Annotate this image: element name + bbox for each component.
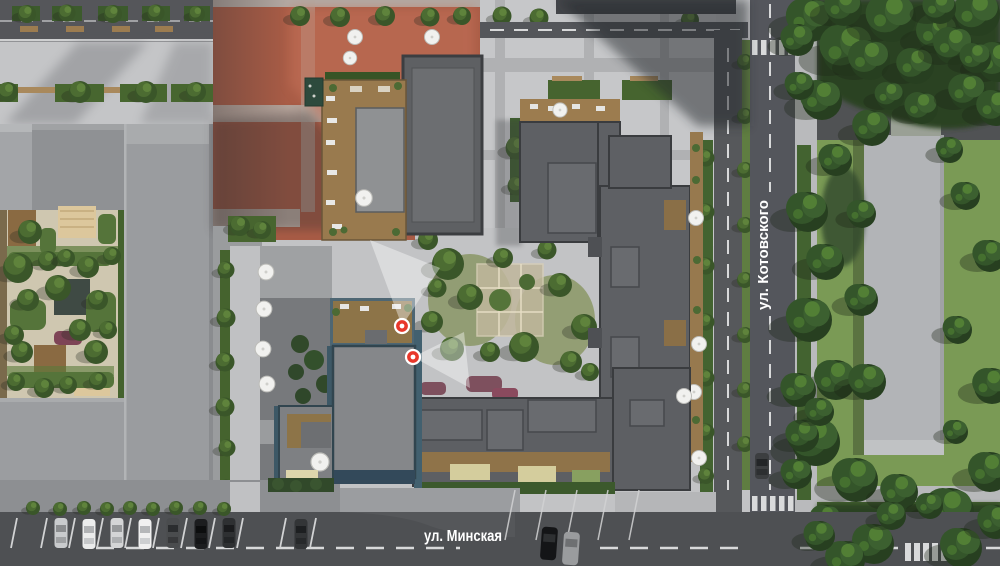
svg-text:ул. Котовского: ул. Котовского: [755, 200, 772, 310]
svg-text:ул. Минская: ул. Минская: [424, 528, 502, 545]
